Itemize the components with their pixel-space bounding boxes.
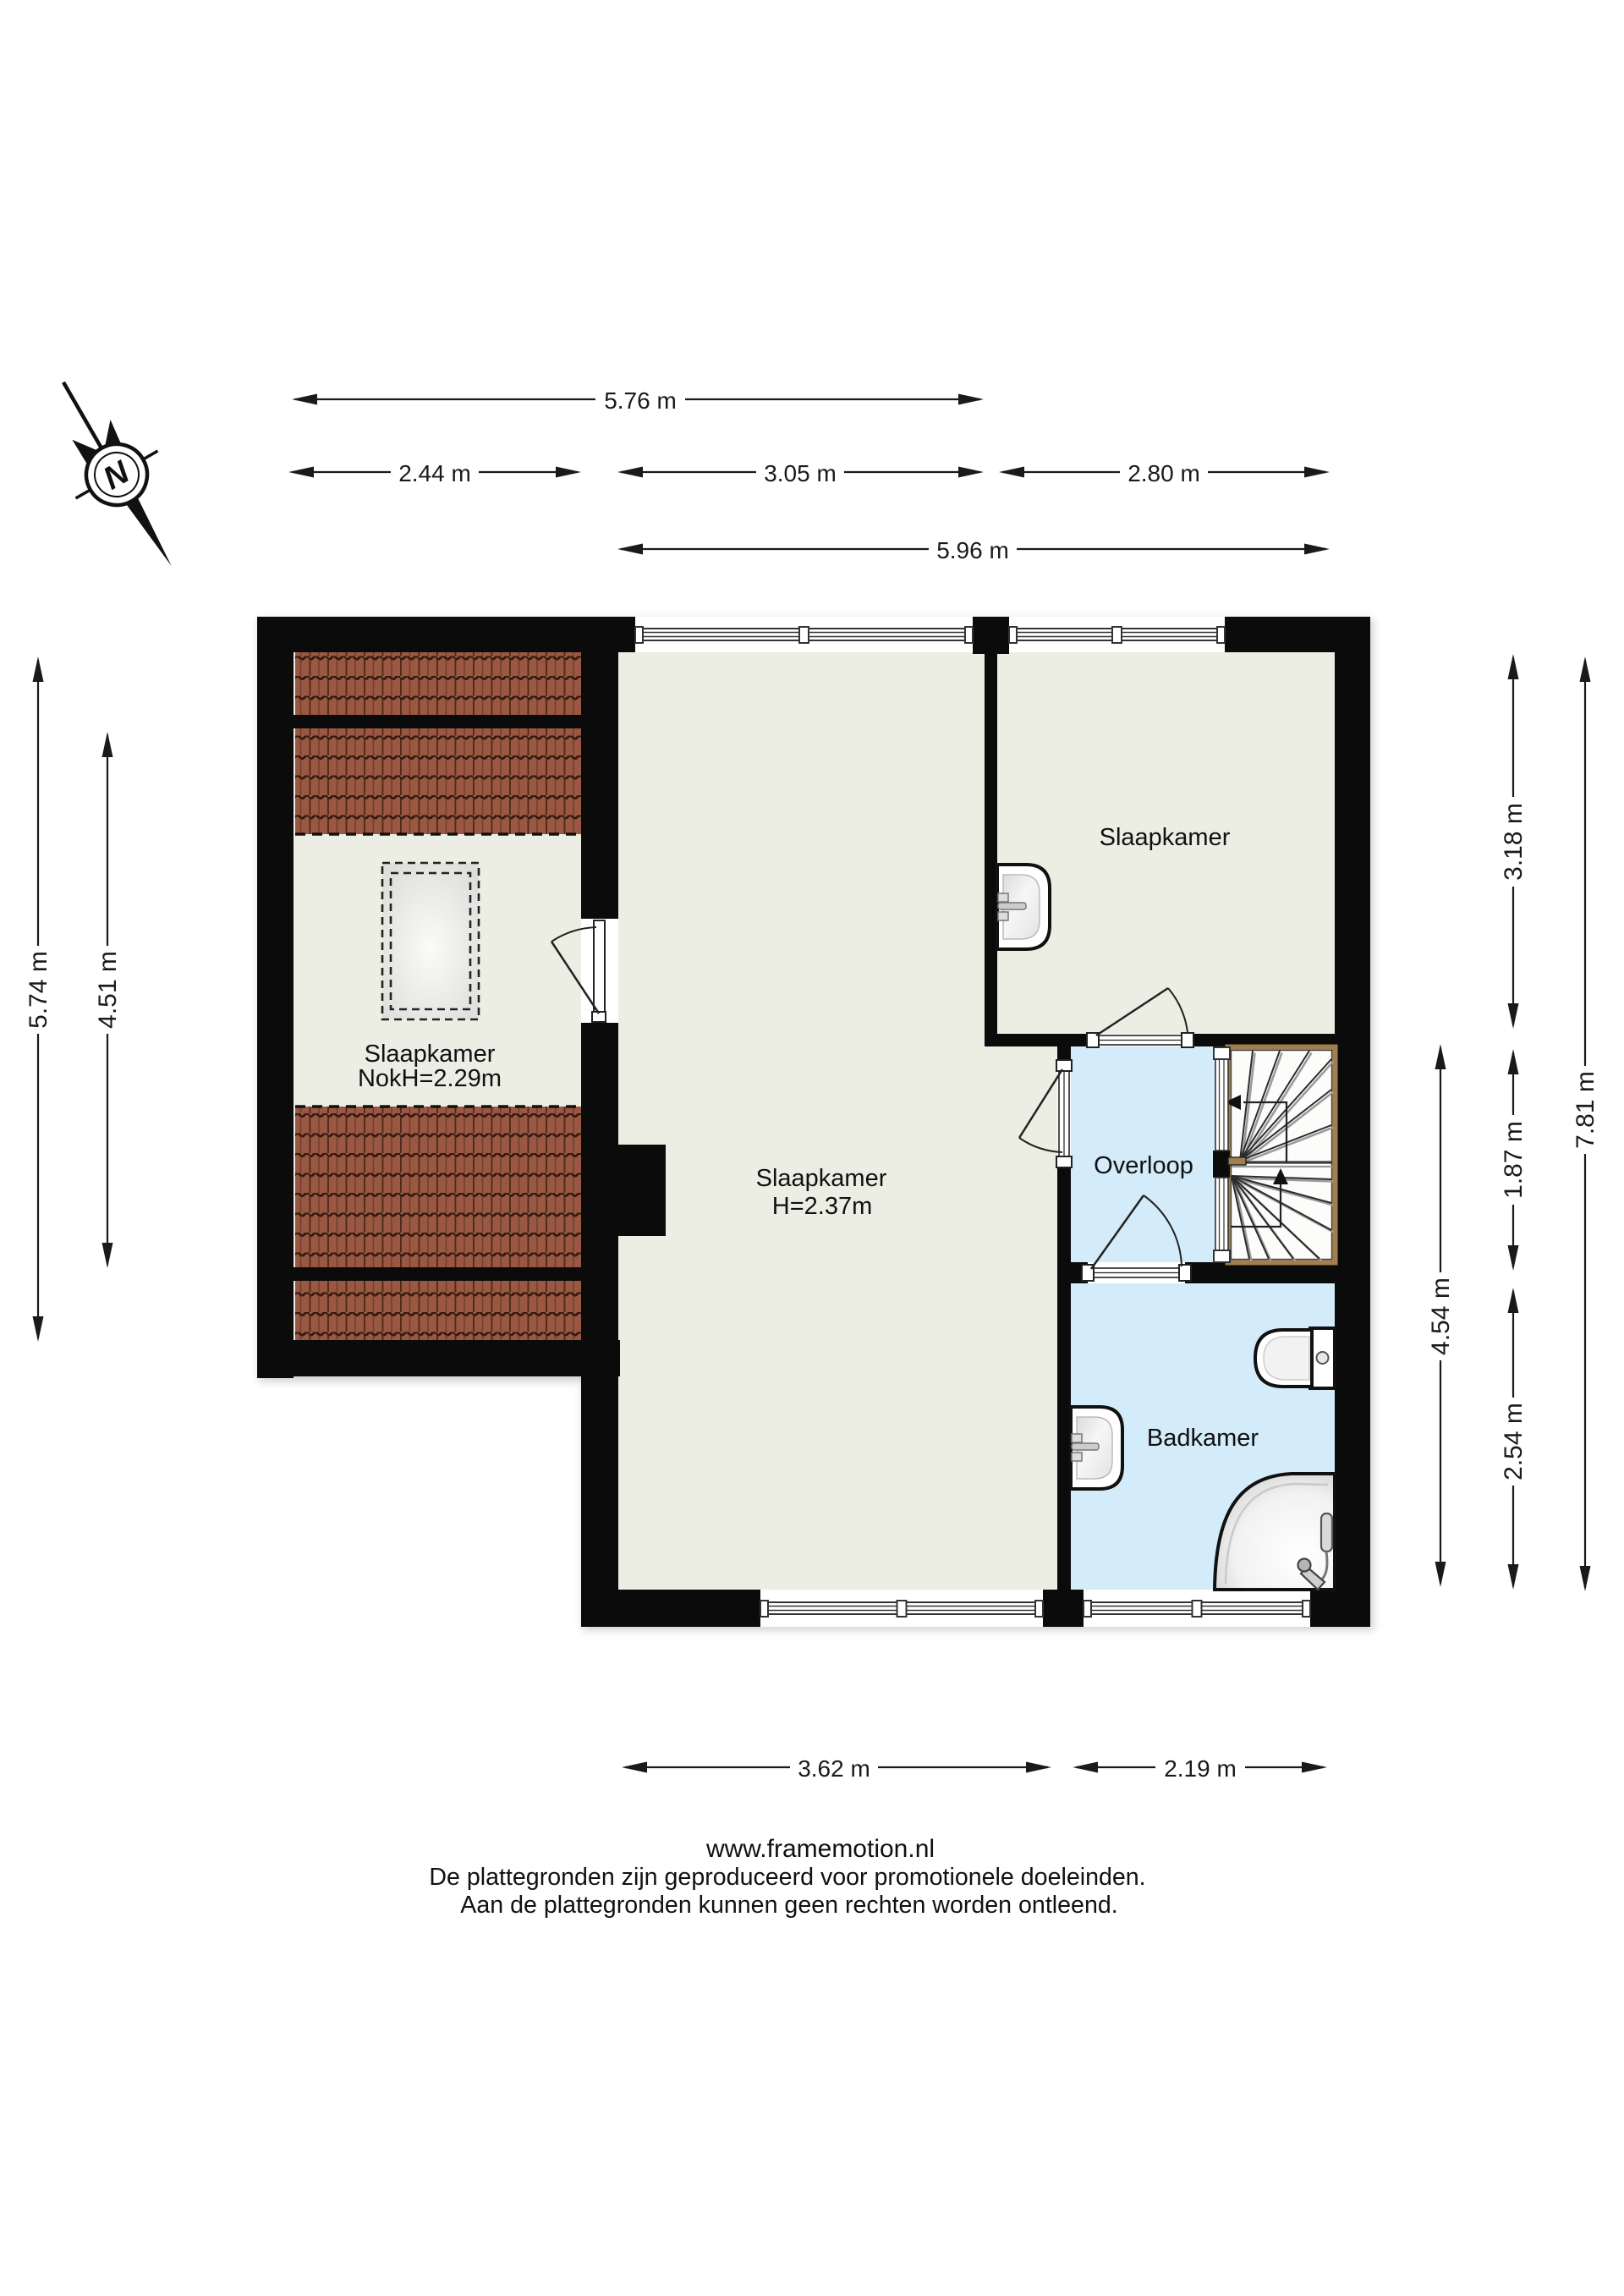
svg-text:3.18 m: 3.18 m <box>1500 803 1528 881</box>
svg-text:Slaapkamer: Slaapkamer <box>756 1165 887 1192</box>
svg-text:2.54 m: 2.54 m <box>1500 1403 1528 1480</box>
svg-text:2.19 m: 2.19 m <box>1164 1755 1237 1782</box>
svg-text:5.96 m: 5.96 m <box>936 537 1009 563</box>
svg-text:De plattegronden zijn geproduc: De plattegronden zijn geproduceerd voor … <box>429 1864 1145 1891</box>
svg-text:Slaapkamer: Slaapkamer <box>365 1041 496 1068</box>
svg-text:1.87 m: 1.87 m <box>1500 1121 1528 1199</box>
svg-text:5.76 m: 5.76 m <box>604 387 677 414</box>
svg-text:5.74 m: 5.74 m <box>25 951 52 1029</box>
svg-text:Aan de plattegronden kunnen ge: Aan de plattegronden kunnen geen rechten… <box>460 1892 1117 1919</box>
svg-text:4.51 m: 4.51 m <box>94 951 122 1029</box>
svg-text:H=2.37m: H=2.37m <box>772 1193 872 1220</box>
svg-text:NokH=2.29m: NokH=2.29m <box>358 1065 502 1092</box>
svg-text:2.80 m: 2.80 m <box>1127 460 1200 486</box>
svg-text:4.54 m: 4.54 m <box>1427 1277 1455 1355</box>
svg-text:Overloop: Overloop <box>1094 1152 1193 1179</box>
svg-text:2.44 m: 2.44 m <box>398 460 471 486</box>
svg-text:3.62 m: 3.62 m <box>798 1755 870 1782</box>
svg-text:7.81 m: 7.81 m <box>1572 1071 1599 1149</box>
svg-text:3.05 m: 3.05 m <box>764 460 837 486</box>
svg-text:www.framemotion.nl: www.framemotion.nl <box>705 1835 935 1863</box>
svg-text:Slaapkamer: Slaapkamer <box>1100 824 1231 851</box>
svg-text:Badkamer: Badkamer <box>1147 1425 1259 1452</box>
